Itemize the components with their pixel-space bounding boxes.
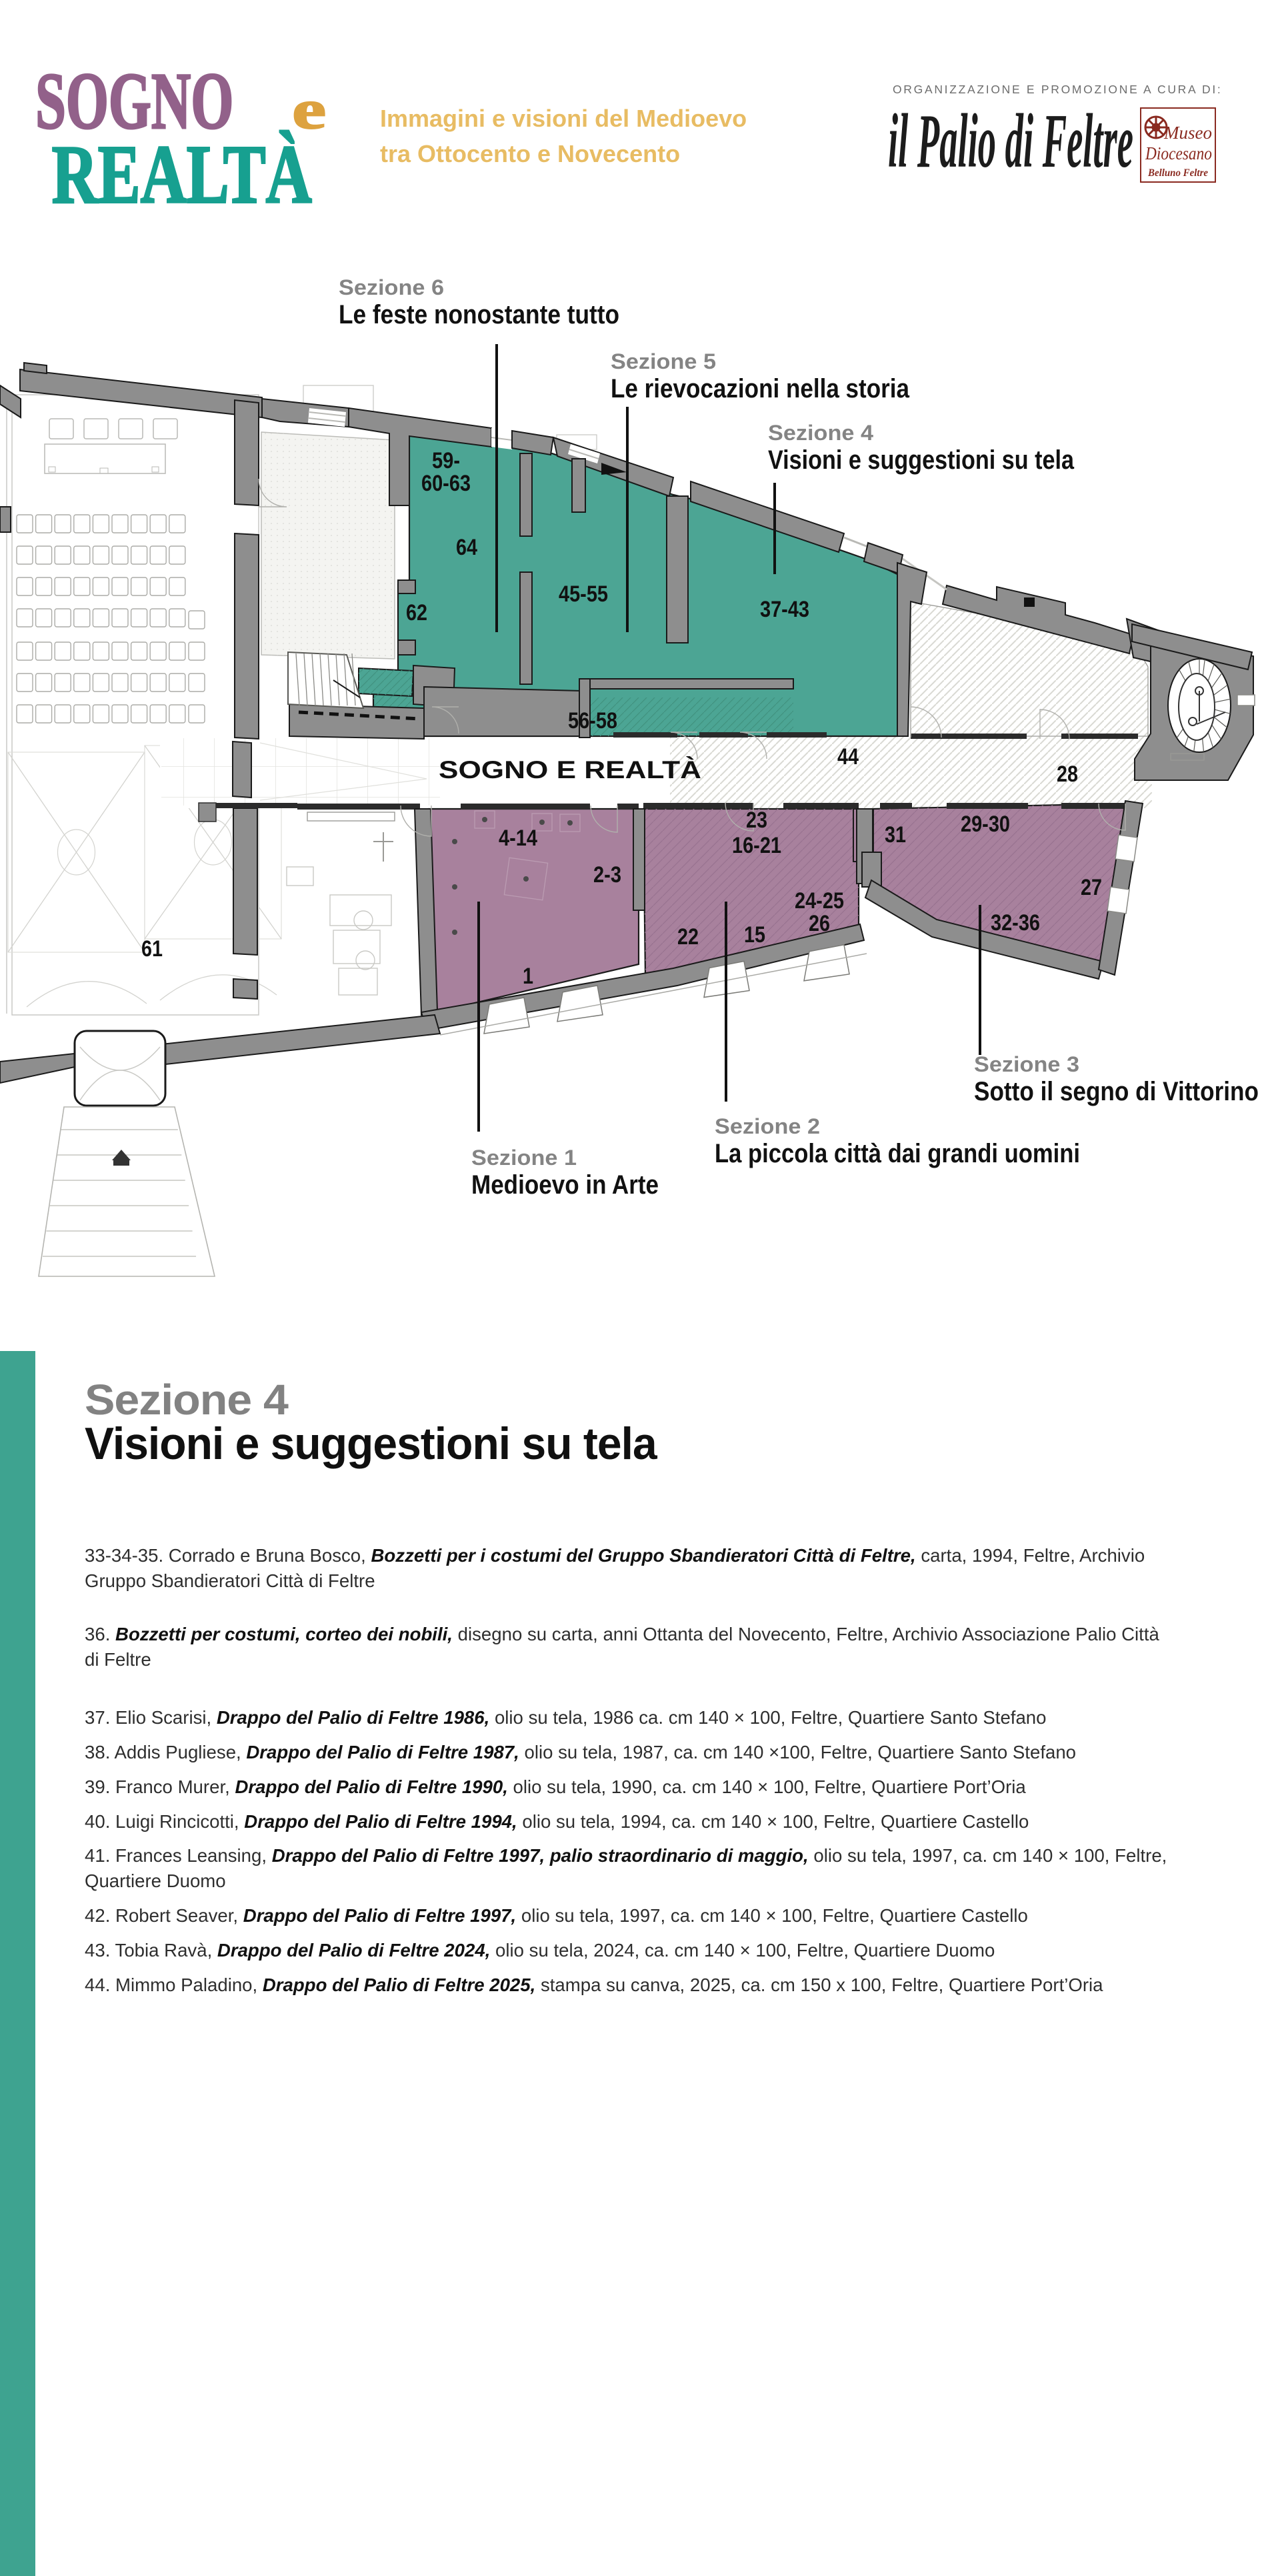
svg-text:Sotto il segno di Vittorino: Sotto il segno di Vittorino — [974, 1077, 1259, 1106]
svg-text:27: 27 — [1081, 875, 1102, 900]
svg-text:56-58: 56-58 — [568, 708, 617, 734]
svg-text:Le feste nonostante tutto: Le feste nonostante tutto — [339, 300, 619, 329]
svg-text:60-63: 60-63 — [421, 471, 471, 496]
svg-text:37-43: 37-43 — [760, 597, 809, 622]
svg-text:Sezione 4: Sezione 4 — [768, 421, 873, 445]
svg-text:La piccola città dai grandi uo: La piccola città dai grandi uomini — [715, 1139, 1080, 1168]
svg-text:15: 15 — [744, 922, 765, 948]
svg-text:23: 23 — [746, 808, 767, 833]
svg-text:Sezione 5: Sezione 5 — [611, 349, 716, 373]
svg-text:45-55: 45-55 — [559, 581, 608, 607]
svg-text:61: 61 — [141, 936, 163, 962]
svg-text:22: 22 — [677, 924, 699, 950]
svg-text:62: 62 — [406, 600, 427, 625]
svg-text:26: 26 — [809, 911, 830, 936]
svg-text:1: 1 — [523, 964, 533, 989]
svg-text:REALTÀ: REALTÀ — [52, 128, 312, 213]
svg-text:59-: 59- — [432, 448, 460, 473]
svg-text:Belluno Feltre: Belluno Feltre — [1147, 167, 1208, 179]
svg-text:2-3: 2-3 — [593, 862, 621, 888]
svg-text:Sezione 2: Sezione 2 — [715, 1114, 820, 1138]
svg-text:SOGNO E REALTÀ: SOGNO E REALTÀ — [439, 756, 701, 784]
svg-text:32-36: 32-36 — [991, 910, 1040, 936]
svg-text:28: 28 — [1057, 762, 1078, 787]
svg-text:il Palio di Feltre: il Palio di Feltre — [888, 99, 1133, 183]
svg-text:Le rievocazioni nella storia: Le rievocazioni nella storia — [611, 374, 910, 403]
svg-text:Diocesano: Diocesano — [1145, 143, 1212, 163]
svg-text:24-25: 24-25 — [795, 888, 844, 914]
svg-text:Sezione 3: Sezione 3 — [974, 1052, 1079, 1076]
svg-text:4-14: 4-14 — [499, 826, 537, 851]
svg-text:Visioni e suggestioni su tela: Visioni e suggestioni su tela — [768, 445, 1075, 475]
svg-text:Sezione 1: Sezione 1 — [471, 1146, 577, 1170]
svg-text:Museo: Museo — [1163, 123, 1212, 143]
svg-text:Sezione 6: Sezione 6 — [339, 275, 444, 299]
svg-text:44: 44 — [837, 744, 859, 770]
svg-text:Medioevo in Arte: Medioevo in Arte — [471, 1170, 659, 1200]
svg-text:16-21: 16-21 — [732, 833, 781, 858]
svg-text:64: 64 — [456, 535, 477, 560]
svg-text:31: 31 — [885, 822, 906, 848]
svg-text:29-30: 29-30 — [961, 812, 1010, 837]
